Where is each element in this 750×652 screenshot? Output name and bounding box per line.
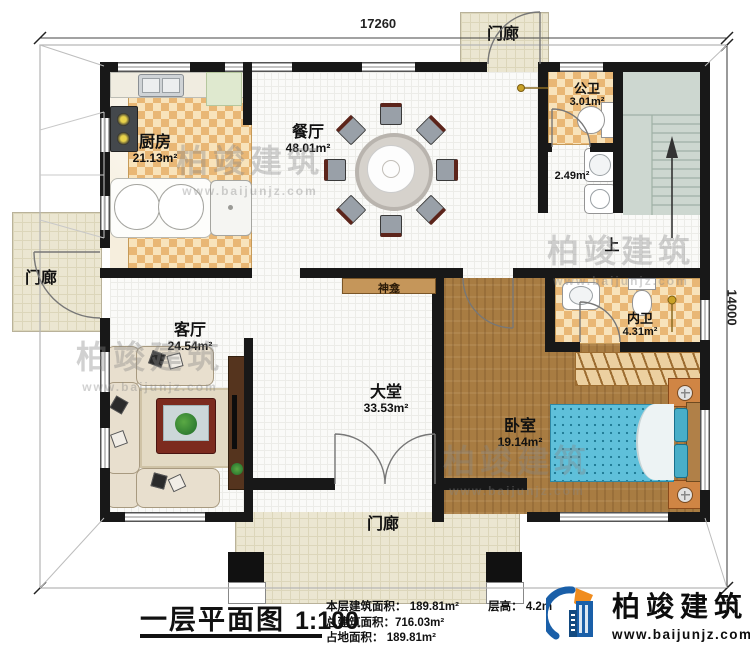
window <box>100 196 110 230</box>
wall <box>100 318 110 352</box>
nightstand-lamp <box>677 385 693 401</box>
stat-total-area: 总建筑面积：716.03m² <box>326 616 552 632</box>
nightstand <box>668 480 702 509</box>
window <box>362 62 415 72</box>
porch-pier-left-top <box>228 552 264 582</box>
sofa-corner <box>106 468 140 508</box>
sink-basin <box>162 78 180 93</box>
wall-living-hall <box>244 338 253 522</box>
living-label: 客厅 24.54m² <box>145 322 235 353</box>
wall-dining-bath <box>538 62 548 213</box>
sofa-left <box>106 382 140 474</box>
area-stats: 本层建筑面积： 189.81m² 层高： 4.2m 总建筑面积：716.03m²… <box>326 600 552 647</box>
dimension-right: 14000 <box>725 289 740 325</box>
brand-logo: 柏竣建筑 www.baijunjz.com <box>546 584 750 642</box>
wall <box>527 512 560 522</box>
kitchen-prep-board <box>206 72 242 106</box>
sofa-corner <box>106 346 140 386</box>
wall-shrine <box>300 268 463 278</box>
wall <box>244 478 335 490</box>
dining-label: 餐厅 48.01m² <box>263 124 353 155</box>
wall-bedroom-west <box>432 278 444 522</box>
dining-chair <box>380 215 402 237</box>
ensuite-sink <box>569 286 593 305</box>
stairs-up-label: 上 <box>598 238 626 255</box>
window <box>100 428 110 468</box>
bed-blanket <box>636 404 674 480</box>
brand-text: 柏竣建筑 www.baijunjz.com <box>612 585 750 642</box>
wall <box>545 342 580 352</box>
kitchen-round-table <box>158 184 204 230</box>
window <box>560 512 668 522</box>
nightstand-lamp <box>677 487 693 503</box>
brand-name: 柏竣建筑 <box>612 585 750 625</box>
stat-footprint-area: 占地面积： 189.81m² <box>326 631 552 647</box>
window <box>125 512 205 522</box>
ensuite-label: 内卫 4.31m² <box>605 312 675 338</box>
kitchen-sink <box>138 74 184 97</box>
bed-pillow <box>674 408 688 442</box>
wall <box>100 230 110 248</box>
wall-kitchen-dining <box>243 62 252 125</box>
wall <box>190 62 225 72</box>
wall <box>590 143 613 152</box>
bedroom-label: 卧室 19.14m² <box>475 418 565 449</box>
window <box>225 62 292 72</box>
dining-chair <box>380 103 402 125</box>
kitchen-label: 厨房 21.13m² <box>110 134 200 165</box>
stove-burner <box>117 113 130 126</box>
wall-kitchen-living <box>100 268 252 278</box>
hall-label: 大堂 33.53m² <box>341 384 431 415</box>
wall <box>620 342 710 352</box>
wall <box>100 62 110 118</box>
drawing-title-text: 一层平面图 <box>140 598 285 637</box>
title-underline <box>140 634 322 638</box>
kitchen-round-table <box>114 184 160 230</box>
porch-top-label: 门廊 <box>487 20 519 44</box>
window <box>560 62 603 72</box>
staircase-floor <box>623 70 700 215</box>
shrine-label: 神龛 <box>378 283 400 295</box>
shrine-cabinet: 神龛 <box>342 278 436 294</box>
ensuite-sink-counter <box>562 282 600 310</box>
stat-floor-height: 层高： 4.2m <box>488 601 552 613</box>
shower-unit <box>584 184 616 214</box>
bed-pillow <box>674 444 688 478</box>
dimension-ticks <box>34 32 733 44</box>
porch-pier-right-top <box>486 552 522 582</box>
kitchen-appliance <box>210 180 252 236</box>
wall <box>292 62 362 72</box>
wall <box>435 478 527 490</box>
wall <box>668 512 710 522</box>
public-bath-label: 公卫 3.01m² <box>552 82 622 108</box>
shower-door <box>590 189 610 209</box>
plant-icon <box>231 463 243 475</box>
window <box>118 62 190 72</box>
sink-basin <box>142 78 160 93</box>
window <box>100 352 110 392</box>
wall <box>100 152 110 196</box>
dining-chair <box>324 159 346 181</box>
ensuite-toilet-tank <box>628 278 656 290</box>
brand-website: www.baijunjz.com <box>612 627 750 642</box>
window <box>100 118 110 152</box>
tv-screen <box>232 395 237 449</box>
dimension-top: 17260 <box>360 16 396 31</box>
dining-chair <box>436 159 458 181</box>
appliance-knob <box>228 205 233 210</box>
wall <box>100 392 110 428</box>
stat-floor-area: 本层建筑面积： 189.81m² <box>326 601 459 613</box>
vanity-label: 2.49m² <box>542 170 602 182</box>
porch-left-label: 门廊 <box>25 264 57 288</box>
floor-plan-canvas: 神龛 厨房 21.13m² 餐厅 48.01m² 公卫 3.01m² 2.49m… <box>0 0 750 652</box>
brand-logo-icon <box>546 584 604 642</box>
window <box>700 410 710 490</box>
dining-table-center <box>382 160 400 178</box>
wall-bedroom-north <box>513 268 710 278</box>
coffee-table <box>156 398 216 454</box>
wall <box>100 512 125 522</box>
window <box>700 300 710 340</box>
plant-icon <box>175 413 197 435</box>
wall <box>700 62 710 300</box>
wall-ensuite-west <box>545 278 555 342</box>
porch-bottom-label: 门廊 <box>367 510 399 534</box>
wall <box>538 143 552 152</box>
wall <box>415 62 487 72</box>
toilet-bowl <box>577 106 605 134</box>
